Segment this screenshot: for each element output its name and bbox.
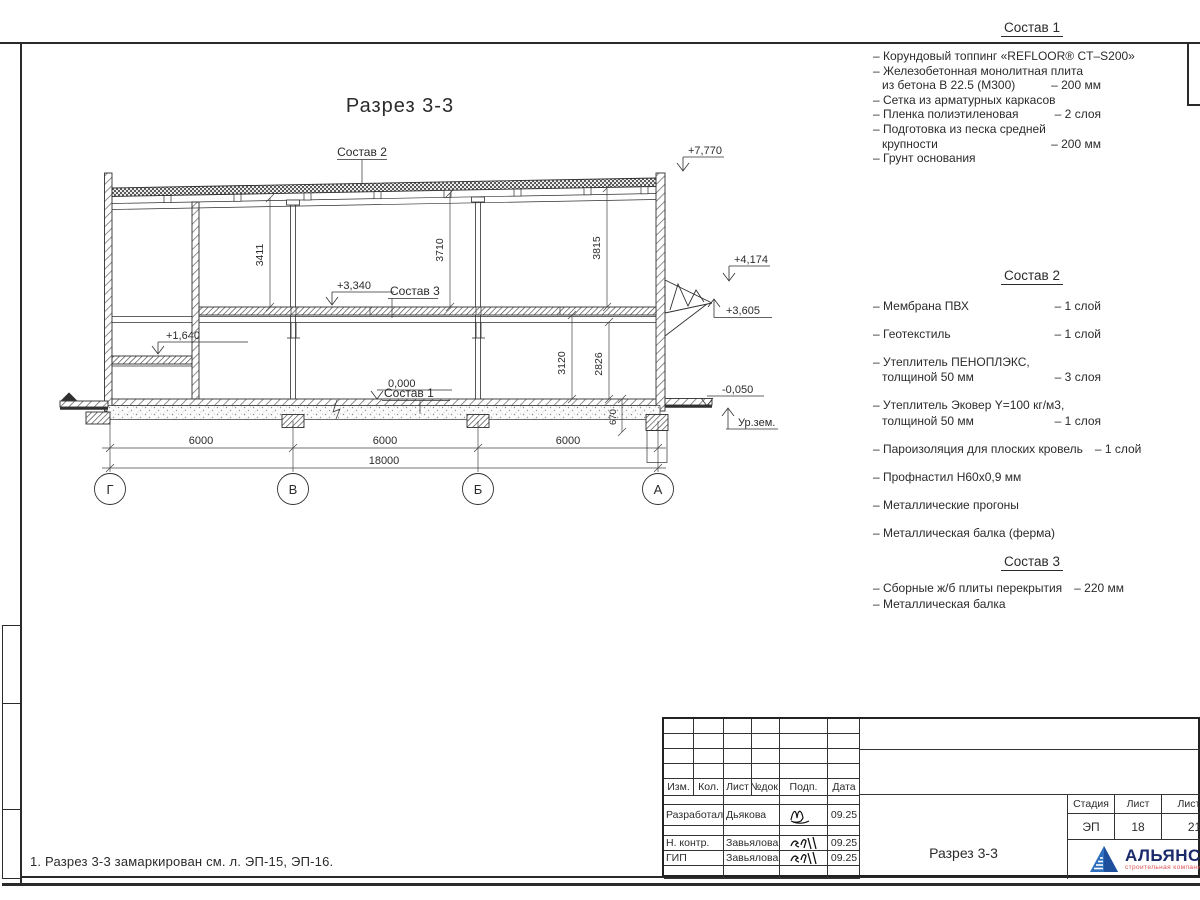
name-cell: Дьякова <box>724 805 780 826</box>
doc-code-cell-2 <box>860 750 1200 795</box>
spec-item: – Сборные ж/б плиты перекрытия– 220 мм <box>873 581 1115 596</box>
elev-mezz-marker: +1,640 <box>152 330 248 354</box>
drawing-title: Разрез 3-3 <box>346 95 454 117</box>
elev-roof-marker: +7,770 <box>677 145 724 171</box>
spec-sostav-2: Состав 2 – Мембрана ПВХ– 1 слой– Геотекс… <box>873 268 1101 541</box>
svg-text:А: А <box>654 482 663 497</box>
svg-text:Ур.зем.: Ур.зем. <box>738 417 775 429</box>
stage-table: Стадия Лист Листов ЭП 18 21 <box>1068 795 1200 840</box>
spec-title: Состав 3 <box>1001 554 1063 571</box>
canopy-truss <box>665 280 712 336</box>
elev-canopy-top-marker: +4,174 <box>723 254 770 281</box>
elev-slab-marker: +3,340 <box>326 280 394 305</box>
drawing-name-cell: Разрез 3-3 <box>860 795 1068 879</box>
interior-wall <box>192 202 199 399</box>
svg-text:-0,050: -0,050 <box>722 384 753 396</box>
svg-text:3411: 3411 <box>254 244 266 267</box>
spec-item: – Профнастил Н60х0,9 мм <box>873 470 1101 485</box>
spec-item: – Металлическая балка <box>873 597 1115 612</box>
svg-text:Г: Г <box>106 482 113 497</box>
sheet-number: 18 <box>1115 814 1162 840</box>
spec-item: – Сетка из арматурных каркасов <box>873 93 1101 108</box>
corner-stamp-box <box>1187 44 1200 106</box>
signature <box>780 851 828 866</box>
svg-text:Состав 3: Состав 3 <box>390 284 440 298</box>
role-cell: Разработал <box>664 805 724 826</box>
doc-code-cell <box>860 719 1200 750</box>
spec-item: толщиной 50 мм– 3 слоя <box>873 370 1101 385</box>
svg-text:+3,605: +3,605 <box>726 305 760 317</box>
mid-floor-slab <box>199 307 656 315</box>
roof-composition-label: Состав 2 <box>337 145 387 183</box>
name-cell: Завьялова <box>724 851 780 866</box>
date-cell: 09.25 <box>828 836 860 851</box>
svg-text:3815: 3815 <box>591 236 603 260</box>
svg-text:Состав 2: Состав 2 <box>337 145 387 159</box>
spec-item: из бетона В 22.5 (М300)– 200 мм <box>873 78 1101 93</box>
roof-slab <box>112 178 656 197</box>
company-logo: АЛЬЯНС строительная компания <box>1068 840 1200 879</box>
svg-text:6000: 6000 <box>373 435 397 447</box>
right-apron <box>665 399 712 407</box>
spec-sostav-3: Состав 3 – Сборные ж/б плиты перекрытия–… <box>873 554 1115 612</box>
svg-text:2826: 2826 <box>593 352 605 376</box>
svg-text:6000: 6000 <box>556 435 580 447</box>
spec-item: крупности– 200 мм <box>873 137 1101 152</box>
svg-text:6000: 6000 <box>189 435 213 447</box>
svg-text:В: В <box>289 482 298 497</box>
bottom-dimensions: 6000 6000 6000 18000 <box>102 421 666 472</box>
svg-text:3120: 3120 <box>556 351 568 375</box>
sheets-total: 21 <box>1162 814 1200 840</box>
spec-item: – Грунт основания <box>873 151 1101 166</box>
axis-bubbles: Г В Б А <box>95 474 674 505</box>
spec-sostav-1: Состав 1 – Корундовый топпинг «REFLOOR® … <box>873 20 1101 166</box>
ground-level-marker: Ур.зем. <box>722 408 778 429</box>
section-drawing: Разрез 3-3 Состав 2 <box>40 85 790 520</box>
svg-text:+4,174: +4,174 <box>734 254 768 266</box>
spec-item: – Железобетонная монолитная плита <box>873 64 1101 79</box>
foundation-pad <box>646 415 668 431</box>
spec-item: – Геотекстиль– 1 слой <box>873 327 1101 342</box>
stage-value: ЭП <box>1068 814 1115 840</box>
svg-text:3710: 3710 <box>434 238 446 262</box>
svg-text:670: 670 <box>608 409 619 425</box>
spec-item: – Мембрана ПВХ– 1 слой <box>873 299 1101 314</box>
elev-canopy-bot-marker: +3,605 <box>708 299 772 318</box>
left-wall <box>105 173 113 411</box>
signature <box>780 836 828 851</box>
sheet-note: 1. Разрез 3-3 замаркирован см. л. ЭП-15,… <box>30 854 333 869</box>
name-cell: Завьялова <box>724 836 780 851</box>
logo-pyramid-icon <box>1090 846 1118 873</box>
spec-item: – Утеплитель Эковер Y=100 кг/м3, <box>873 398 1101 413</box>
date-cell: 09.25 <box>828 851 860 866</box>
svg-text:Состав 1: Состав 1 <box>384 386 434 400</box>
right-wall <box>656 173 665 411</box>
role-cell: Н. контр. <box>664 836 724 851</box>
spec-item: – Металлические прогоны <box>873 498 1101 513</box>
signature-table: Разработал Дьякова 09.25 Н. контр. Завья… <box>664 796 860 879</box>
spec-item: – Корундовый топпинг «REFLOOR® CT–S200» <box>873 49 1101 64</box>
logo-name: АЛЬЯНС <box>1125 847 1200 864</box>
left-margin-cells <box>2 625 22 879</box>
mezzanine-slab <box>112 356 192 364</box>
spec-item: толщиной 50 мм– 1 слоя <box>873 414 1101 429</box>
spec-item: – Пароизоляция для плоских кровель– 1 сл… <box>873 442 1101 457</box>
logo-subtitle: строительная компания <box>1125 865 1200 872</box>
column-B2 <box>472 197 485 399</box>
spec-title: Состав 1 <box>1001 20 1063 37</box>
column-B <box>287 200 300 399</box>
sheet-edge-line <box>2 883 1200 886</box>
spec-item: – Металлическая балка (ферма) <box>873 526 1101 541</box>
foundation-pit <box>647 431 667 463</box>
signature <box>780 805 828 826</box>
foundation-pad <box>86 412 110 424</box>
svg-text:+1,640: +1,640 <box>166 330 200 342</box>
svg-text:18000: 18000 <box>369 455 400 467</box>
title-block: Изм. Кол. Лист №док. Подп. Дата Разработ… <box>662 717 1200 877</box>
role-cell: ГИП <box>664 851 724 866</box>
floor-underlay <box>107 406 660 420</box>
date-cell: 09.25 <box>828 805 860 826</box>
svg-text:Б: Б <box>474 482 483 497</box>
spec-item: – Подготовка из песка средней <box>873 122 1101 137</box>
left-apron <box>60 393 108 409</box>
svg-text:+7,770: +7,770 <box>688 145 722 157</box>
spec-item: – Пленка полиэтиленовая– 2 слоя <box>873 107 1101 122</box>
revision-table: Изм. Кол. Лист №док. Подп. Дата <box>664 719 860 796</box>
spec-item: – Утеплитель ПЕНОПЛЭКС, <box>873 355 1101 370</box>
spec-title: Состав 2 <box>1001 268 1063 285</box>
svg-text:+3,340: +3,340 <box>337 280 371 292</box>
